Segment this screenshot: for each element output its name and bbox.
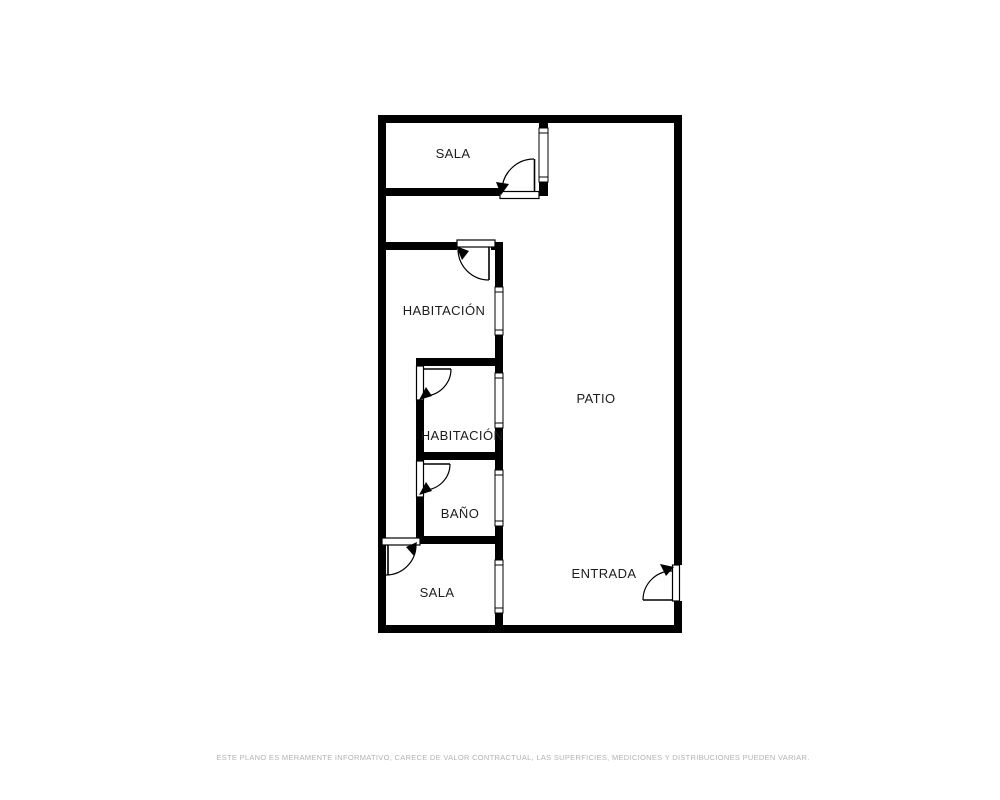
room-label-bano: BAÑO bbox=[441, 506, 479, 521]
floor-plan-page: SALA HABITACIÓN HABITACIÓN BAÑO SALA PAT… bbox=[0, 0, 1000, 800]
room-label-habitacion-2: HABITACIÓN bbox=[421, 428, 504, 443]
window-habitacion-2 bbox=[495, 373, 503, 428]
door-threshold bbox=[673, 565, 680, 601]
wall-sala-top-bottom bbox=[378, 188, 500, 196]
doors bbox=[382, 159, 680, 601]
door-entrada bbox=[643, 564, 680, 601]
disclaimer-text: ESTE PLANO ES MERAMENTE INFORMATIVO, CAR… bbox=[216, 753, 809, 762]
outer-wall-right-upper bbox=[674, 115, 682, 565]
door-sala-bottom bbox=[382, 538, 420, 575]
room-label-habitacion-1: HABITACIÓN bbox=[403, 303, 486, 318]
door-threshold bbox=[457, 240, 495, 247]
outer-wall-top bbox=[378, 115, 682, 123]
outer-wall-bottom bbox=[378, 625, 682, 633]
room-label-sala-top: SALA bbox=[436, 146, 471, 161]
door-sala-top bbox=[496, 159, 539, 199]
outer-wall-right-lower bbox=[674, 601, 682, 633]
wall-hab1-top-left bbox=[378, 242, 457, 250]
window-sala-top bbox=[539, 128, 548, 182]
wall-hab2-top bbox=[416, 358, 503, 366]
door-threshold bbox=[500, 192, 539, 199]
room-label-patio: PATIO bbox=[576, 391, 615, 406]
room-label-sala-bottom: SALA bbox=[420, 585, 455, 600]
window-habitacion-1 bbox=[495, 287, 503, 335]
floor-plan-drawing: SALA HABITACIÓN HABITACIÓN BAÑO SALA PAT… bbox=[0, 0, 1000, 800]
wall-hab2-left-a bbox=[416, 358, 424, 366]
door-habitacion-1 bbox=[456, 240, 495, 280]
room-labels: SALA HABITACIÓN HABITACIÓN BAÑO SALA PAT… bbox=[403, 146, 637, 600]
window-sala-bottom bbox=[495, 560, 503, 613]
wall-bano-sala-divider bbox=[416, 536, 503, 544]
door-habitacion-2 bbox=[417, 366, 452, 400]
room-label-entrada: ENTRADA bbox=[572, 566, 637, 581]
door-swing-arc bbox=[643, 571, 672, 600]
wall-hab2-bano-divider bbox=[416, 452, 503, 460]
window-bano bbox=[495, 470, 503, 526]
door-bano bbox=[417, 461, 451, 497]
